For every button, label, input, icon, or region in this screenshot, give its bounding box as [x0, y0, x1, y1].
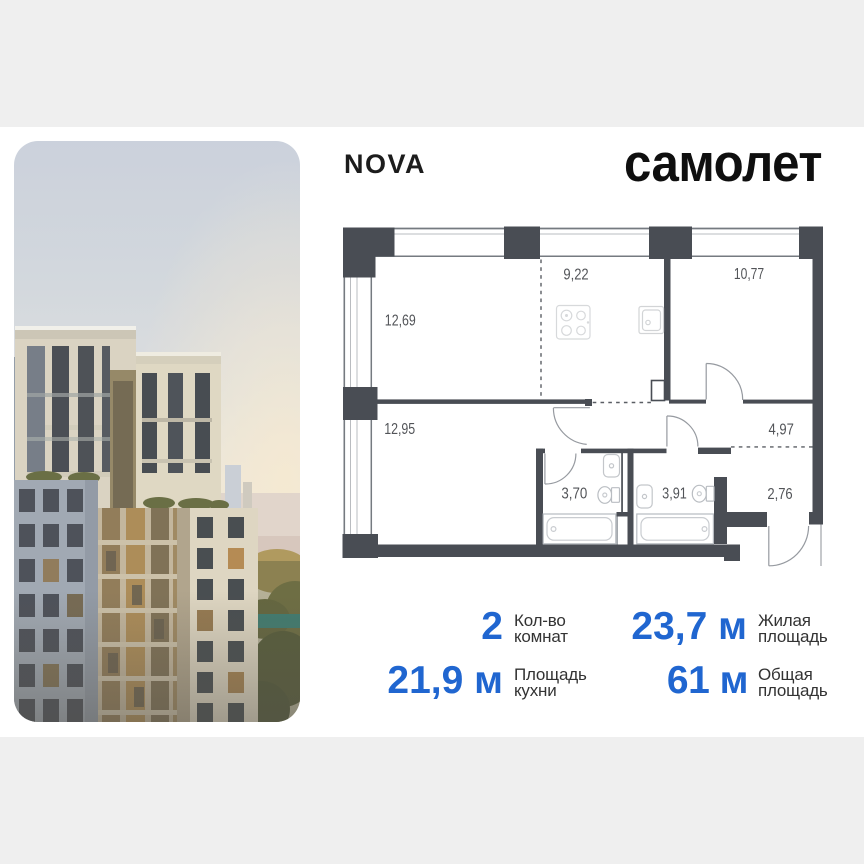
svg-text:10,77: 10,77 [734, 265, 764, 283]
svg-text:3,70: 3,70 [561, 486, 587, 503]
svg-text:12,95: 12,95 [384, 420, 415, 438]
svg-text:9,22: 9,22 [563, 267, 588, 284]
svg-text:2,76: 2,76 [767, 486, 792, 503]
svg-text:12,69: 12,69 [385, 311, 416, 329]
svg-text:4,97: 4,97 [769, 422, 794, 439]
svg-text:3,91: 3,91 [662, 485, 687, 502]
